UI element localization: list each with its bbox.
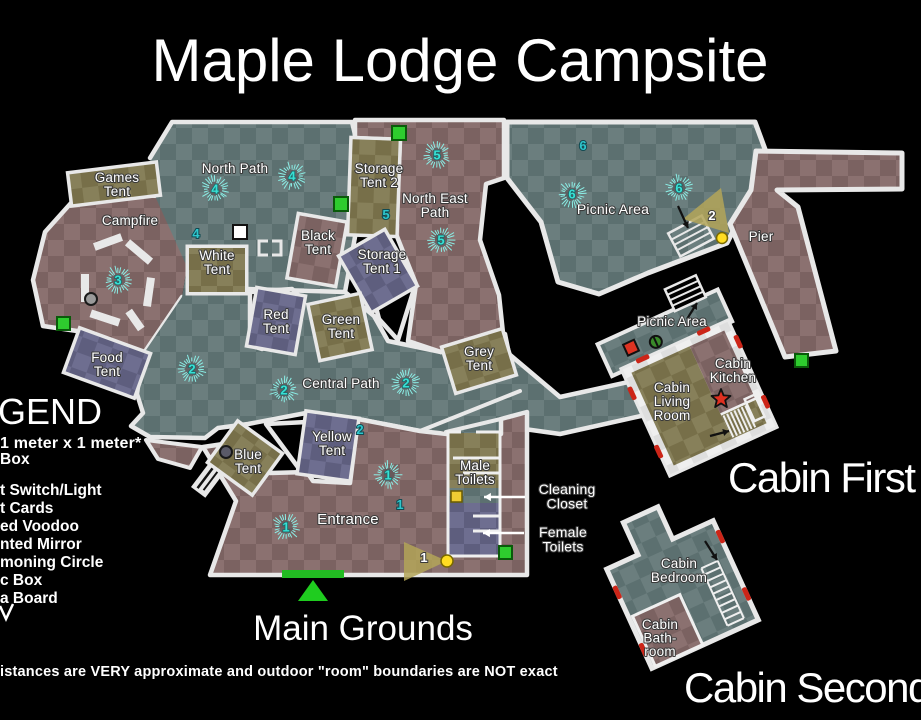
svg-text:FoodTent: FoodTent — [91, 350, 123, 379]
svg-text:Cabin Second Floor: Cabin Second Floor — [684, 664, 921, 711]
svg-text:4: 4 — [211, 182, 219, 197]
svg-text:CabinBath-room: CabinBath-room — [642, 617, 678, 659]
svg-text:6: 6 — [579, 138, 586, 153]
svg-text:Maple Lodge Campsite: Maple Lodge Campsite — [151, 27, 768, 94]
svg-text:CabinKitchen: CabinKitchen — [710, 356, 756, 385]
svg-text:1 meter x 1 meter*: 1 meter x 1 meter* — [0, 435, 142, 452]
svg-text:ed Voodoo: ed Voodoo — [0, 518, 79, 535]
svg-text:Box: Box — [0, 451, 30, 468]
svg-text:2: 2 — [356, 422, 363, 437]
svg-text:2: 2 — [708, 208, 715, 223]
svg-text:1: 1 — [384, 468, 391, 483]
svg-text:StorageTent 2: StorageTent 2 — [355, 161, 404, 190]
svg-text:2: 2 — [280, 383, 287, 398]
svg-text:6: 6 — [568, 187, 575, 202]
svg-text:BlueTent: BlueTent — [234, 447, 262, 476]
svg-text:1: 1 — [396, 497, 403, 512]
svg-text:Central Path: Central Path — [302, 376, 379, 391]
svg-text:t Cards: t Cards — [0, 500, 53, 517]
svg-text:5: 5 — [433, 148, 440, 163]
svg-text:CabinLivingRoom: CabinLivingRoom — [654, 380, 691, 423]
svg-text:6: 6 — [675, 181, 682, 196]
svg-text:1: 1 — [420, 550, 427, 565]
svg-text:4: 4 — [192, 226, 200, 241]
svg-text:Pier: Pier — [749, 229, 774, 244]
svg-text:2: 2 — [188, 362, 195, 377]
svg-text:RedTent: RedTent — [263, 307, 289, 336]
svg-text:LEGEND: LEGEND — [0, 391, 102, 432]
svg-text:c Box: c Box — [0, 572, 43, 589]
svg-text:Picnic Area: Picnic Area — [577, 201, 649, 217]
svg-text:StorageTent 1: StorageTent 1 — [358, 247, 407, 276]
svg-text:nted Mirror: nted Mirror — [0, 536, 82, 553]
svg-text:BlackTent: BlackTent — [301, 228, 335, 257]
svg-text:FemaleToilets: FemaleToilets — [539, 524, 587, 555]
svg-text:MaleToilets: MaleToilets — [455, 458, 495, 487]
svg-text:Picnic Area: Picnic Area — [637, 314, 707, 329]
svg-text:4: 4 — [288, 169, 296, 184]
svg-text:North Path: North Path — [202, 161, 269, 176]
svg-text:CleaningCloset: CleaningCloset — [539, 481, 596, 512]
svg-text:Cabin First Floor: Cabin First Floor — [728, 454, 921, 501]
svg-text:Main Grounds: Main Grounds — [253, 609, 473, 648]
svg-text:1: 1 — [282, 520, 289, 535]
svg-text:Campfire: Campfire — [102, 213, 158, 228]
svg-text:GreyTent: GreyTent — [464, 344, 494, 373]
svg-text:WhiteTent: WhiteTent — [199, 248, 235, 277]
svg-text:3: 3 — [114, 273, 121, 288]
svg-text:t Switch/Light: t Switch/Light — [0, 482, 102, 499]
svg-text:a Board: a Board — [0, 590, 58, 607]
svg-text:5: 5 — [437, 233, 444, 248]
svg-text:istances are VERY approximate: istances are VERY approximate and outdoo… — [0, 664, 558, 680]
svg-text:2: 2 — [402, 376, 409, 391]
svg-text:5: 5 — [382, 207, 389, 222]
svg-text:Entrance: Entrance — [317, 511, 379, 528]
svg-text:moning Circle: moning Circle — [0, 554, 104, 571]
